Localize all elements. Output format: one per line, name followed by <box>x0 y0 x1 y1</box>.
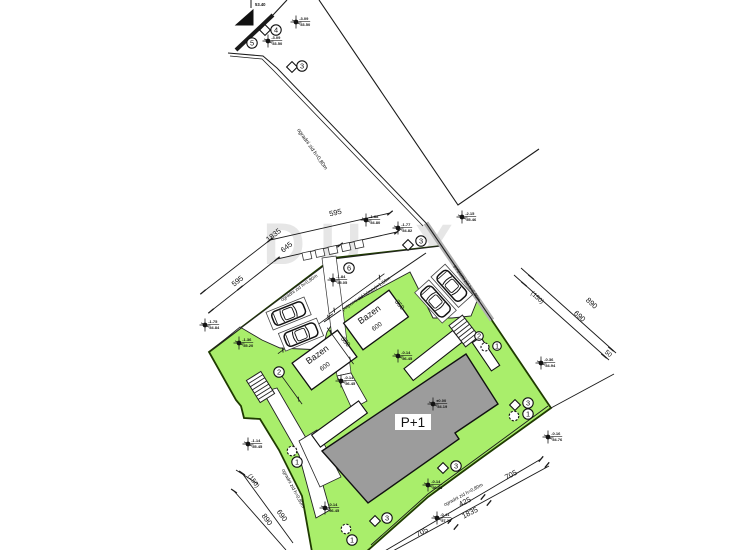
svg-text:56.45: 56.45 <box>345 381 356 386</box>
svg-text:-1.88: -1.88 <box>369 214 379 219</box>
svg-text:55.45: 55.45 <box>252 444 263 449</box>
svg-text:1: 1 <box>526 410 530 419</box>
svg-text:-1.84: -1.84 <box>336 274 346 279</box>
svg-text:54.80: 54.80 <box>370 220 381 225</box>
svg-text:3: 3 <box>300 62 304 71</box>
svg-text:1: 1 <box>350 536 354 545</box>
svg-text:53.50: 53.50 <box>300 22 311 27</box>
svg-text:-0.16: -0.16 <box>551 431 561 436</box>
svg-text:54.84: 54.84 <box>209 325 220 330</box>
svg-text:54.19: 54.19 <box>437 404 448 409</box>
svg-text:-0.36: -0.36 <box>544 357 554 362</box>
svg-text:-1.77: -1.77 <box>401 222 411 227</box>
svg-text:-3.09: -3.09 <box>271 35 281 40</box>
svg-text:P+1: P+1 <box>401 415 425 430</box>
svg-text:-3.09: -3.09 <box>299 16 309 21</box>
svg-text:1: 1 <box>495 342 499 351</box>
svg-text:3: 3 <box>526 399 530 408</box>
svg-text:3: 3 <box>385 514 389 523</box>
svg-text:55.46: 55.46 <box>466 217 477 222</box>
svg-text:6: 6 <box>347 264 351 273</box>
svg-text:53.50: 53.50 <box>272 41 283 46</box>
svg-text:54.94: 54.94 <box>545 363 556 368</box>
svg-text:3: 3 <box>454 462 458 471</box>
svg-text:53.40: 53.40 <box>255 2 266 7</box>
svg-text:56.45: 56.45 <box>329 508 340 513</box>
svg-text:±0.00: ±0.00 <box>436 398 447 403</box>
svg-text:55.20: 55.20 <box>243 343 254 348</box>
svg-text:-0.14: -0.14 <box>401 350 411 355</box>
svg-text:-1.36: -1.36 <box>242 337 252 342</box>
svg-text:2: 2 <box>477 332 481 341</box>
svg-text:56.45: 56.45 <box>402 356 413 361</box>
svg-text:2: 2 <box>277 368 281 377</box>
svg-text:5: 5 <box>250 39 254 48</box>
svg-text:-0.14: -0.14 <box>431 479 441 484</box>
svg-text:4: 4 <box>274 26 278 35</box>
svg-text:54.82: 54.82 <box>402 228 413 233</box>
svg-text:54.76: 54.76 <box>552 437 563 442</box>
svg-text:55.05: 55.05 <box>337 280 348 285</box>
svg-text:-1.14: -1.14 <box>251 438 261 443</box>
svg-text:56.45: 56.45 <box>432 485 443 490</box>
svg-text:-2.15: -2.15 <box>465 211 475 216</box>
svg-text:-1.75: -1.75 <box>208 319 218 324</box>
svg-text:3: 3 <box>419 237 423 246</box>
svg-text:-0.14: -0.14 <box>328 502 338 507</box>
svg-text:-0.14: -0.14 <box>344 375 354 380</box>
svg-text:1: 1 <box>295 458 299 467</box>
